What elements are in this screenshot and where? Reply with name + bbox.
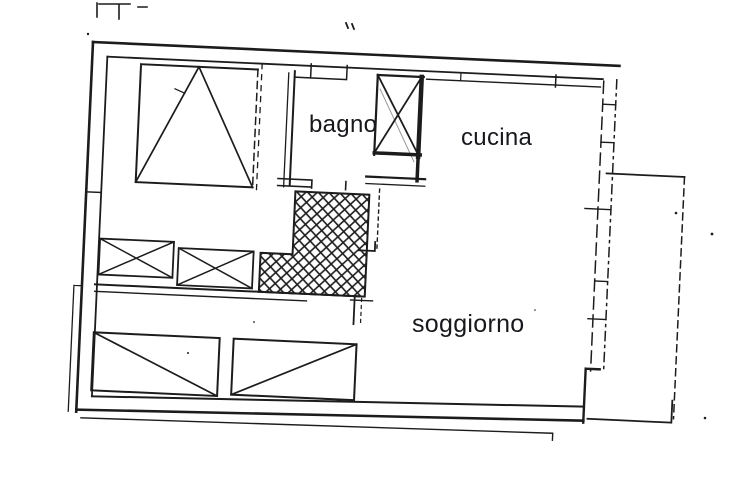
room-label-cucina: cucina <box>461 124 532 152</box>
corridor-hatch-area <box>259 190 370 297</box>
room-label-soggiorno: soggiorno <box>412 310 525 339</box>
floor-plan-drawing <box>0 0 750 483</box>
right-wall-windows <box>575 79 617 424</box>
corridor-passage <box>349 296 372 325</box>
terrace-outline <box>587 173 684 423</box>
floor-plan-page: bagno cucina soggiorno <box>0 0 750 483</box>
bedroom-skylight-symbol <box>136 58 263 191</box>
sofa-rectangles <box>91 332 356 402</box>
shaft-box <box>373 75 424 181</box>
room-label-bagno: bagno <box>309 111 377 139</box>
